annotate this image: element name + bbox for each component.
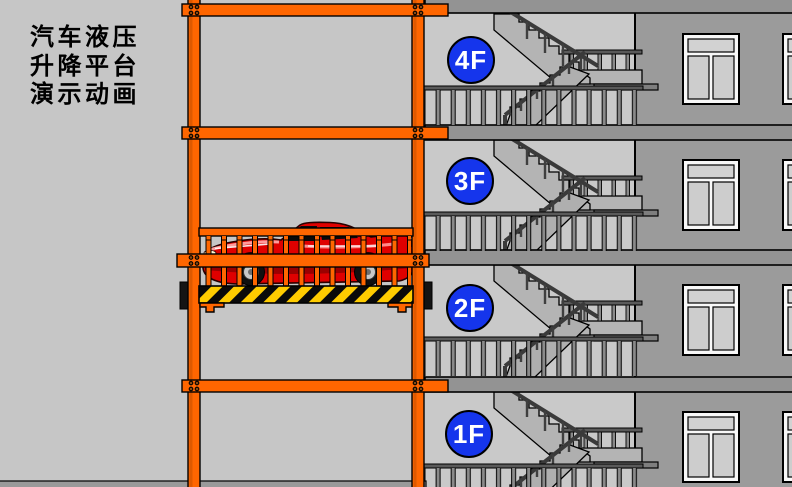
floor-badge-1f-label: 1F (453, 419, 485, 450)
title-line-3: 演示动画 (30, 81, 140, 110)
frame-beam-top (182, 4, 448, 16)
floor-badge-2f: 2F (446, 284, 494, 332)
floor-badge-3f-label: 3F (454, 166, 486, 197)
title-line-1: 汽车液压 (30, 24, 140, 53)
floor-badge-4f-label: 4F (455, 45, 487, 76)
platform-hazard-stripe (199, 286, 413, 303)
floor-badge-1f: 1F (445, 410, 493, 458)
title-line-2: 升降平台 (30, 53, 140, 82)
frame-beam-middle (182, 127, 448, 139)
platform-top-rail (199, 228, 413, 236)
floor-badge-2f-label: 2F (454, 293, 486, 324)
platform-beam (177, 254, 429, 267)
platform-bracket-right (388, 303, 412, 312)
lift-column-left (188, 0, 200, 487)
platform-bracket-left (200, 303, 224, 312)
page-title: 汽车液压 升降平台 演示动画 (30, 24, 140, 110)
car-lift-demo-scene: 汽车液压 升降平台 演示动画 4F 3F 2F 1F (0, 0, 792, 487)
lift-platform (177, 228, 429, 312)
ground-strip (0, 481, 426, 487)
floor-badge-4f: 4F (447, 36, 495, 84)
lift-column-right (412, 0, 424, 487)
frame-beam-bottom (182, 380, 448, 392)
floor-badge-3f: 3F (446, 157, 494, 205)
